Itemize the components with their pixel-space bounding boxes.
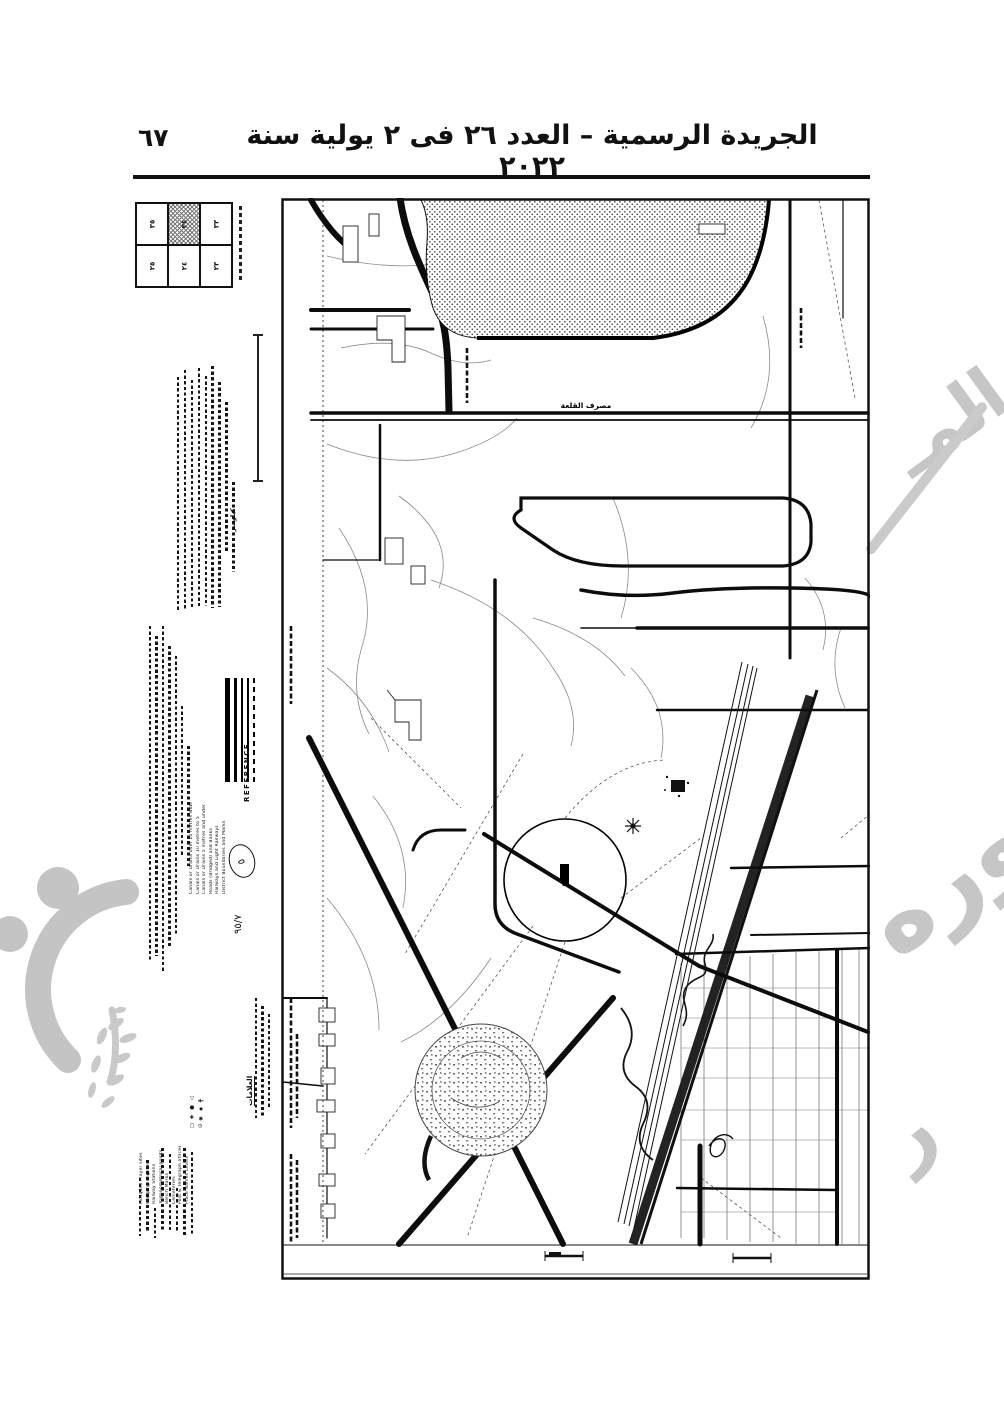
margin-ticks [545,1251,771,1263]
notes-line [225,402,227,552]
settlement [415,1024,547,1180]
notes-line [218,382,220,607]
village-blob [664,776,689,797]
annotation-mark: ٥ [236,857,248,865]
symbol-glyph-icon: ◻ [189,1119,195,1128]
credits-line [191,1152,193,1234]
notes-line [205,376,207,606]
legend-entry: Roads (Bridged) and Banks [209,622,214,894]
legend-arabic-line [149,626,151,961]
legend-arabic-line [162,626,164,971]
hatched-area [419,200,769,338]
notes-line [184,370,186,610]
legend-arabic-line [168,646,170,946]
legend-arabic-line [155,636,157,956]
drain-label: مصرف القلعة [561,401,612,410]
map-frame [283,200,869,1279]
logo-wheat-icon [87,1006,138,1110]
credits-block [139,1148,193,1238]
symbol-glyph-icon: ╋ [198,1096,204,1102]
symbol-glyph-column: ⊙✱▪╋ [198,998,204,1128]
credits-line [183,1148,185,1236]
legend-sample-line [225,678,230,782]
symbols-arabic-block [255,998,270,1118]
symbol-arabic-line [268,1014,270,1109]
index-grid-cell: ٢٥ [136,245,168,287]
symbol-arabic-line [255,998,257,1118]
credits-line [154,1208,156,1238]
legend-arabic-line [181,706,183,856]
notes-line [177,377,179,612]
symbol-glyphs: ◻✚●△ ⊙✱▪╋ [189,998,204,1128]
watermark-stamp-top: المـ [873,351,1004,492]
index-cell-label: ٢٥ [148,262,156,271]
logo-dot-icon [0,916,28,952]
reference-arabic-block [149,626,190,971]
map-margin: ٣٥ ٣٤ ٣٣ ٢٥ ٢٤ ٢٣ كيلومتر [133,198,281,1282]
index-grid-cell: ٢٣ [200,245,232,287]
legend-entry: Railways and Light Railways [215,622,220,894]
notes-line [191,380,193,608]
credits-line [139,1178,141,1236]
index-cell-label: ٣٣ [212,220,220,229]
index-grid-cell: ٣٣ [200,203,232,245]
symbol-glyph-icon: ▪ [198,1102,204,1111]
index-cell-label: ٣٥ [148,220,156,229]
symbol-glyph-icon: ⊙ [198,1120,204,1128]
watermark-stamp-tail: ر [860,1084,952,1182]
index-cell-label: ٣٤ [180,220,188,229]
page-title: الجريدة الرسمية – العدد ٢٦ فى ٢ يولية سن… [232,120,832,182]
page-number: ٦٧ [138,123,169,152]
credits-line [161,1148,163,1230]
legend-arabic-line [175,656,177,936]
annotation-text: ٩٥/٧ [233,915,244,934]
index-grid: ٣٥ ٣٤ ٣٣ ٢٥ ٢٤ ٢٣ [135,202,233,288]
symbol-glyph-icon: ● [189,1101,195,1110]
symbol-arabic-line [261,1006,263,1116]
symbol-glyph-icon: ✚ [189,1110,195,1119]
index-cell-label: ٢٤ [180,262,188,271]
index-cell-label: ٢٣ [212,262,220,271]
reference-title: REFERENCE [243,743,251,802]
legend-entry: Canals or Drains 5 metres and under [202,622,207,894]
roads [283,198,870,1244]
watermark-diagonal-stroke [864,400,989,556]
reference-entries: Canals or Drains over 10 metres wide Can… [189,622,227,894]
legend-sample-line [234,678,237,782]
site-circle-marker [504,819,626,941]
index-grid-cell-current: ٣٤ [168,203,200,245]
grid-caption-line [239,206,242,282]
survey-map-canvas: مصرف القلعة [281,198,870,1282]
scale-bar [257,334,259,482]
legend-sample-line [253,678,255,782]
legend-entry: Canals or Drains over 10 metres wide [189,622,194,894]
header-rule [133,175,870,179]
symbol-glyph-icon: ✱ [198,1111,204,1120]
windmill-icon [625,818,641,834]
index-grid-cell: ٢٤ [168,245,200,287]
credits-line [176,1188,178,1232]
symbols-title: العلامات [245,1076,255,1106]
credits-line [146,1160,148,1232]
notes-block [177,362,235,612]
gazette-page: ٦٧ الجريدة الرسمية – العدد ٢٦ فى ٢ يولية… [0,0,1004,1417]
notes-line [232,482,234,572]
symbol-glyph-icon: △ [189,1092,195,1101]
symbol-glyph-column: ◻✚●△ [189,998,195,1128]
notes-line [211,366,213,608]
legend-entry: Canals or Drains 10 metres to 5 [196,622,201,894]
annotation-circle: ٥ [225,841,259,881]
index-grid-cell: ٣٥ [136,203,168,245]
credits-line [169,1154,171,1230]
notes-line [198,368,200,606]
